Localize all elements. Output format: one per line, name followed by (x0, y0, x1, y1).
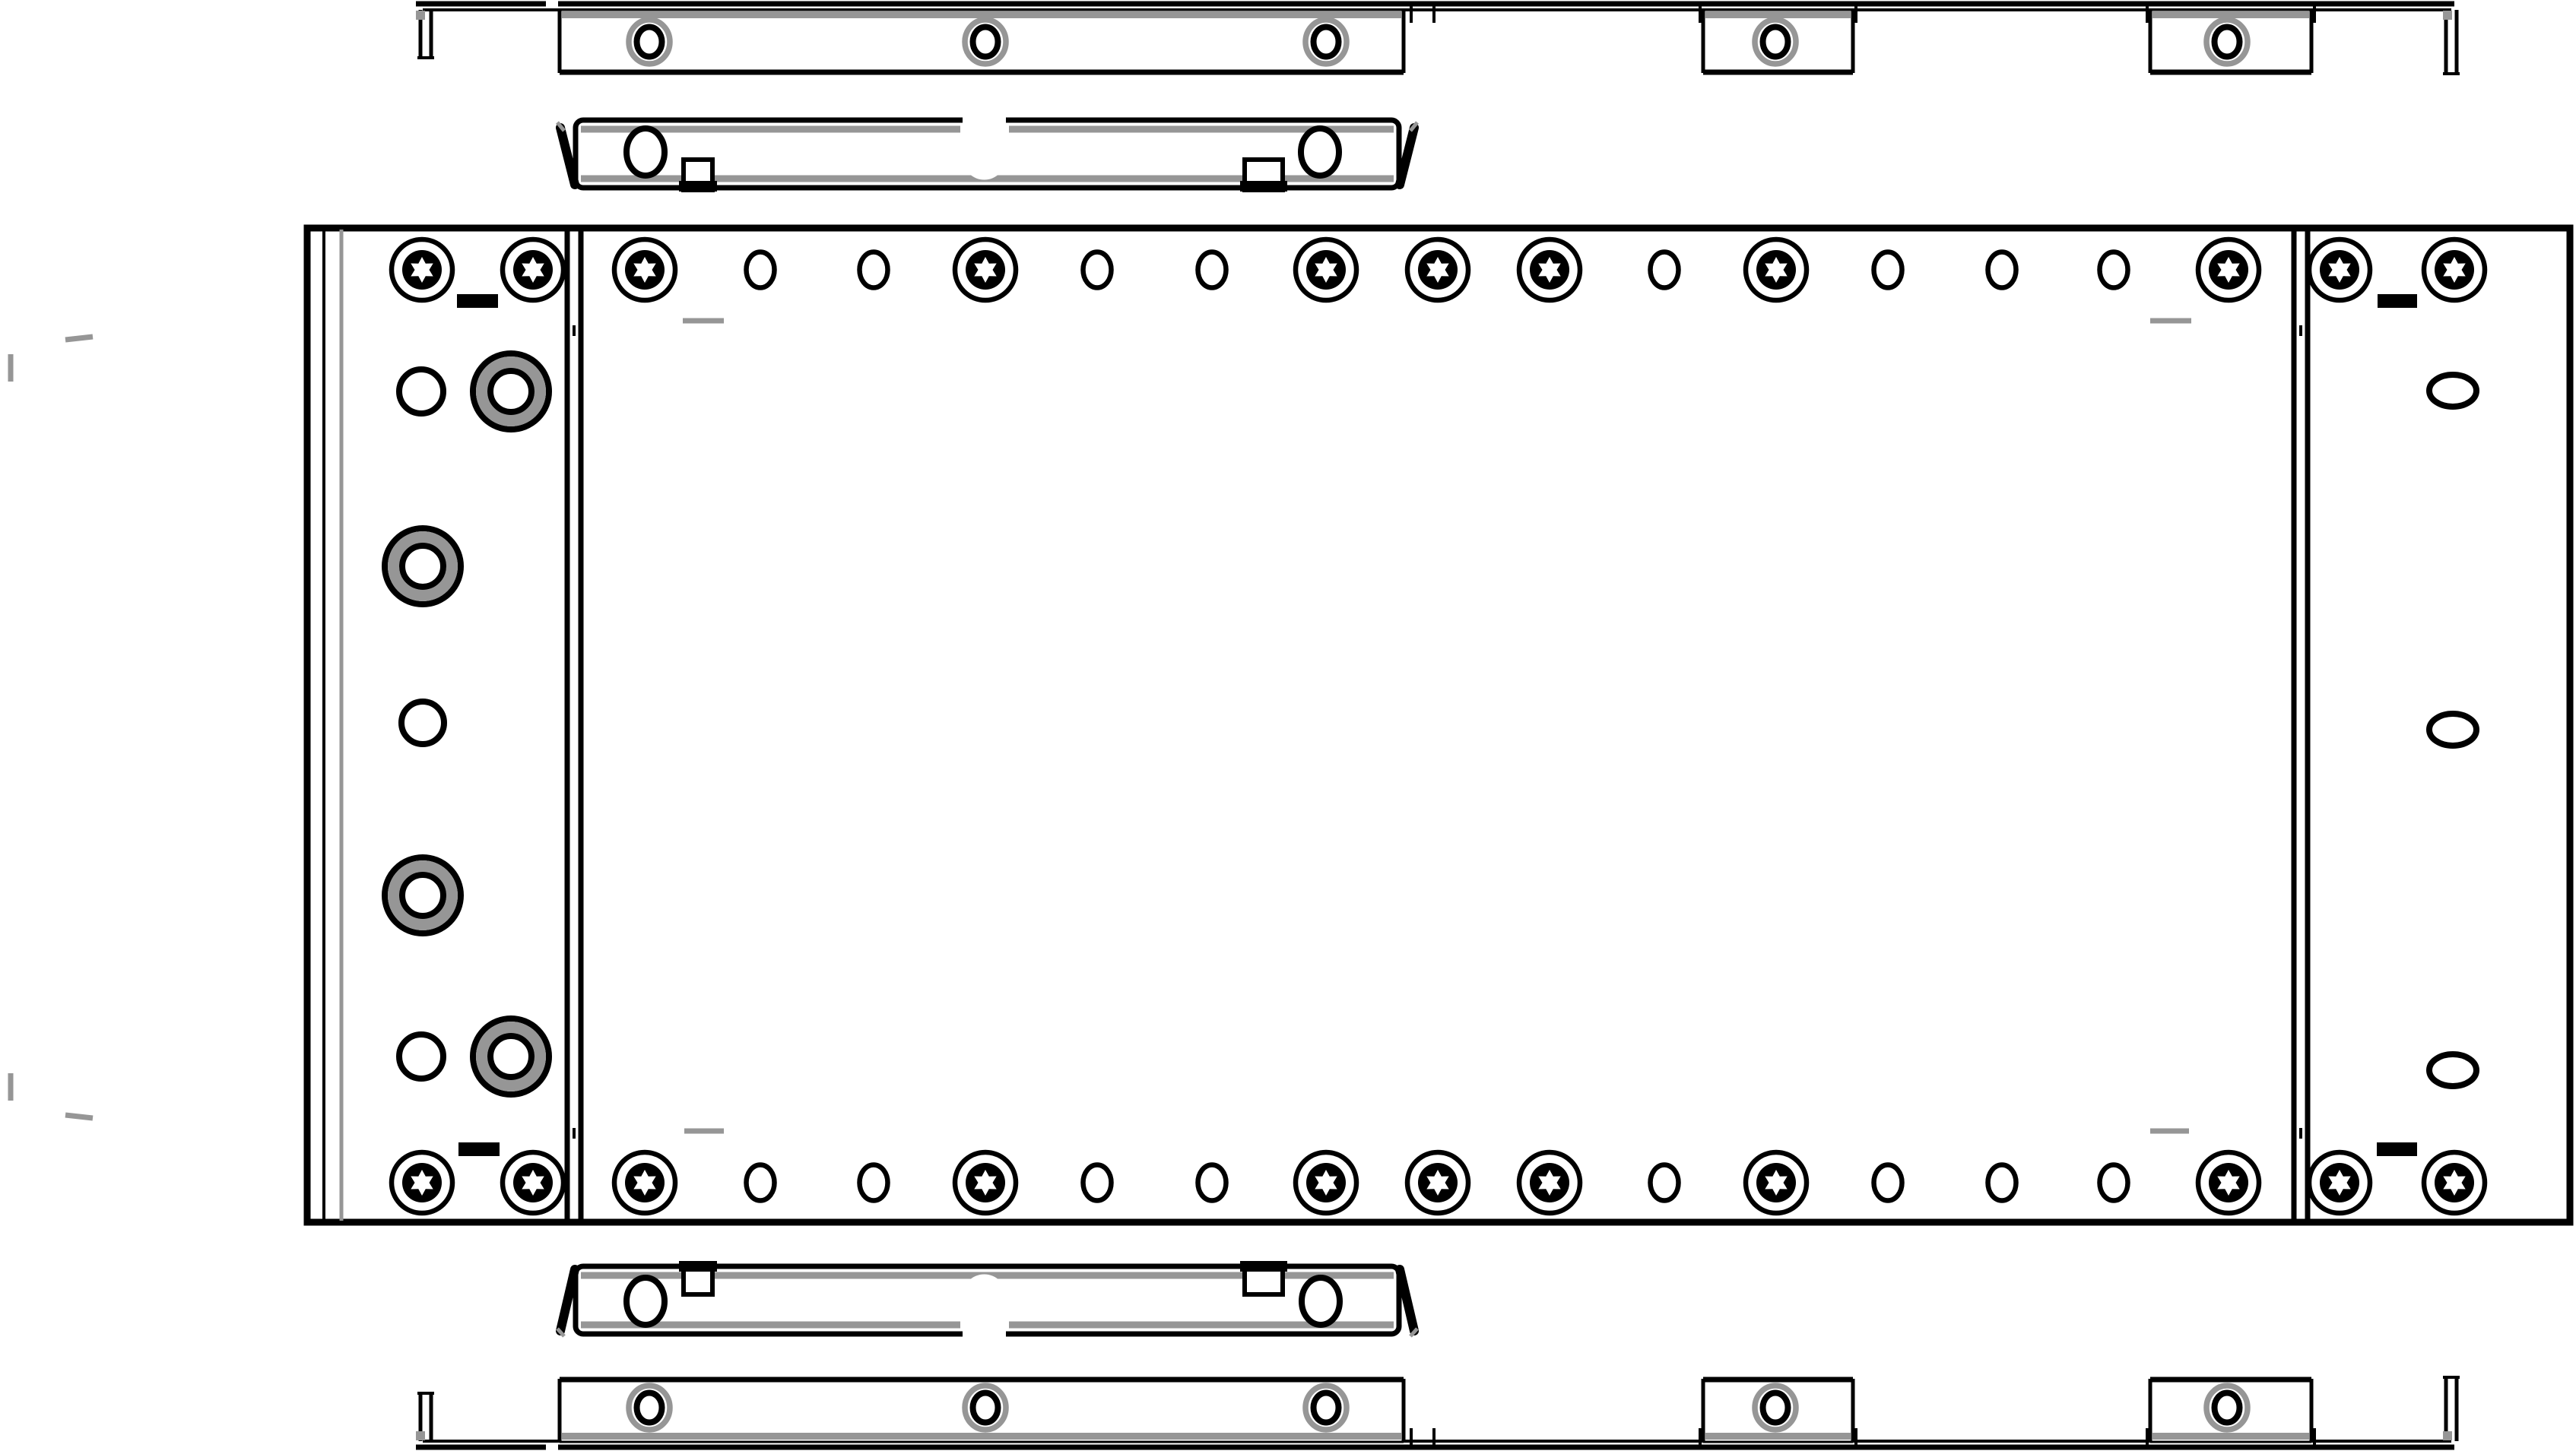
technical-drawing-canvas (0, 0, 2576, 1451)
rivet-hole (2100, 1165, 2128, 1201)
panel-hole (399, 1034, 443, 1079)
torx-screw (614, 239, 675, 300)
rail-screw (2206, 20, 2248, 64)
torx-screw (1296, 239, 1356, 300)
torx-screw (1746, 239, 1807, 300)
bottom-clip-rail (557, 1261, 1417, 1337)
rivet-hole (747, 252, 775, 288)
rail-screw (1755, 20, 1796, 64)
vent-slot (2378, 294, 2417, 319)
rivet-hole (1651, 252, 1679, 288)
clip-rail-hole (1301, 128, 1339, 176)
rivet-hole (1083, 252, 1112, 288)
chassis-body (307, 228, 2570, 1222)
rail-screw (629, 1386, 670, 1430)
rail-screw (1305, 20, 1347, 64)
vent-slot (457, 294, 498, 319)
torx-screw (1519, 1152, 1580, 1213)
panel-hole (401, 702, 444, 744)
rail-screw (2206, 1386, 2248, 1430)
top-mounting-rail (416, 2, 2460, 74)
torx-screw (2424, 239, 2485, 300)
grommet (385, 857, 461, 933)
rivet-hole (2100, 252, 2128, 288)
torx-screw (1407, 239, 1468, 300)
grommet (473, 1019, 549, 1095)
clip-rail-hole (1302, 1278, 1340, 1325)
torx-screw (392, 1152, 452, 1213)
torx-screw (614, 1152, 675, 1213)
technical-drawing (0, 0, 2576, 1451)
rail-screw (1755, 1386, 1796, 1430)
rivet-hole (1874, 252, 1902, 288)
clip-rail-hole (627, 1278, 665, 1325)
vent-slot (684, 1131, 724, 1154)
torx-screw (1519, 239, 1580, 300)
side-panel-hole (2429, 375, 2476, 407)
torx-screw (2309, 1152, 2370, 1213)
rivet-hole (1198, 1165, 1226, 1201)
vent-slot (2150, 1131, 2189, 1154)
vent-slot (2150, 298, 2191, 321)
bottom-mounting-rail (416, 1377, 2460, 1449)
torx-screw (955, 1152, 1016, 1213)
torx-screw (2309, 239, 2370, 300)
rivet-hole (1198, 252, 1226, 288)
clip-rail-hole (627, 128, 665, 176)
side-panel-hole (2429, 1054, 2476, 1086)
vent-slot (458, 1131, 500, 1156)
torx-screw (503, 239, 563, 300)
rivet-hole (747, 1165, 775, 1201)
vent-slot (683, 298, 724, 321)
rivet-hole (1988, 252, 2016, 288)
torx-screw (2424, 1152, 2485, 1213)
rail-screw (629, 20, 670, 64)
grommet (385, 528, 461, 604)
torx-screw (503, 1152, 563, 1213)
panel-hole (399, 369, 443, 413)
rail-screw (1305, 1386, 1347, 1430)
rivet-hole (1874, 1165, 1902, 1201)
torx-screw (1746, 1152, 1807, 1213)
rail-screw (965, 20, 1006, 64)
top-clip-rail (557, 118, 1417, 192)
rivet-hole (860, 1165, 888, 1201)
torx-screw (2198, 1152, 2259, 1213)
torx-screw (1296, 1152, 1356, 1213)
rivet-hole (860, 252, 888, 288)
vent-slot (2377, 1131, 2417, 1156)
rivet-hole (1083, 1165, 1112, 1201)
grommet (473, 353, 549, 429)
front-connector (11, 313, 307, 1142)
torx-screw (955, 239, 1016, 300)
side-panel-hole (2429, 714, 2476, 746)
rivet-hole (1651, 1165, 1679, 1201)
rivet-hole (1988, 1165, 2016, 1201)
torx-screw (2198, 239, 2259, 300)
torx-screw (1407, 1152, 1468, 1213)
torx-screw (392, 239, 452, 300)
rail-screw (965, 1386, 1006, 1430)
